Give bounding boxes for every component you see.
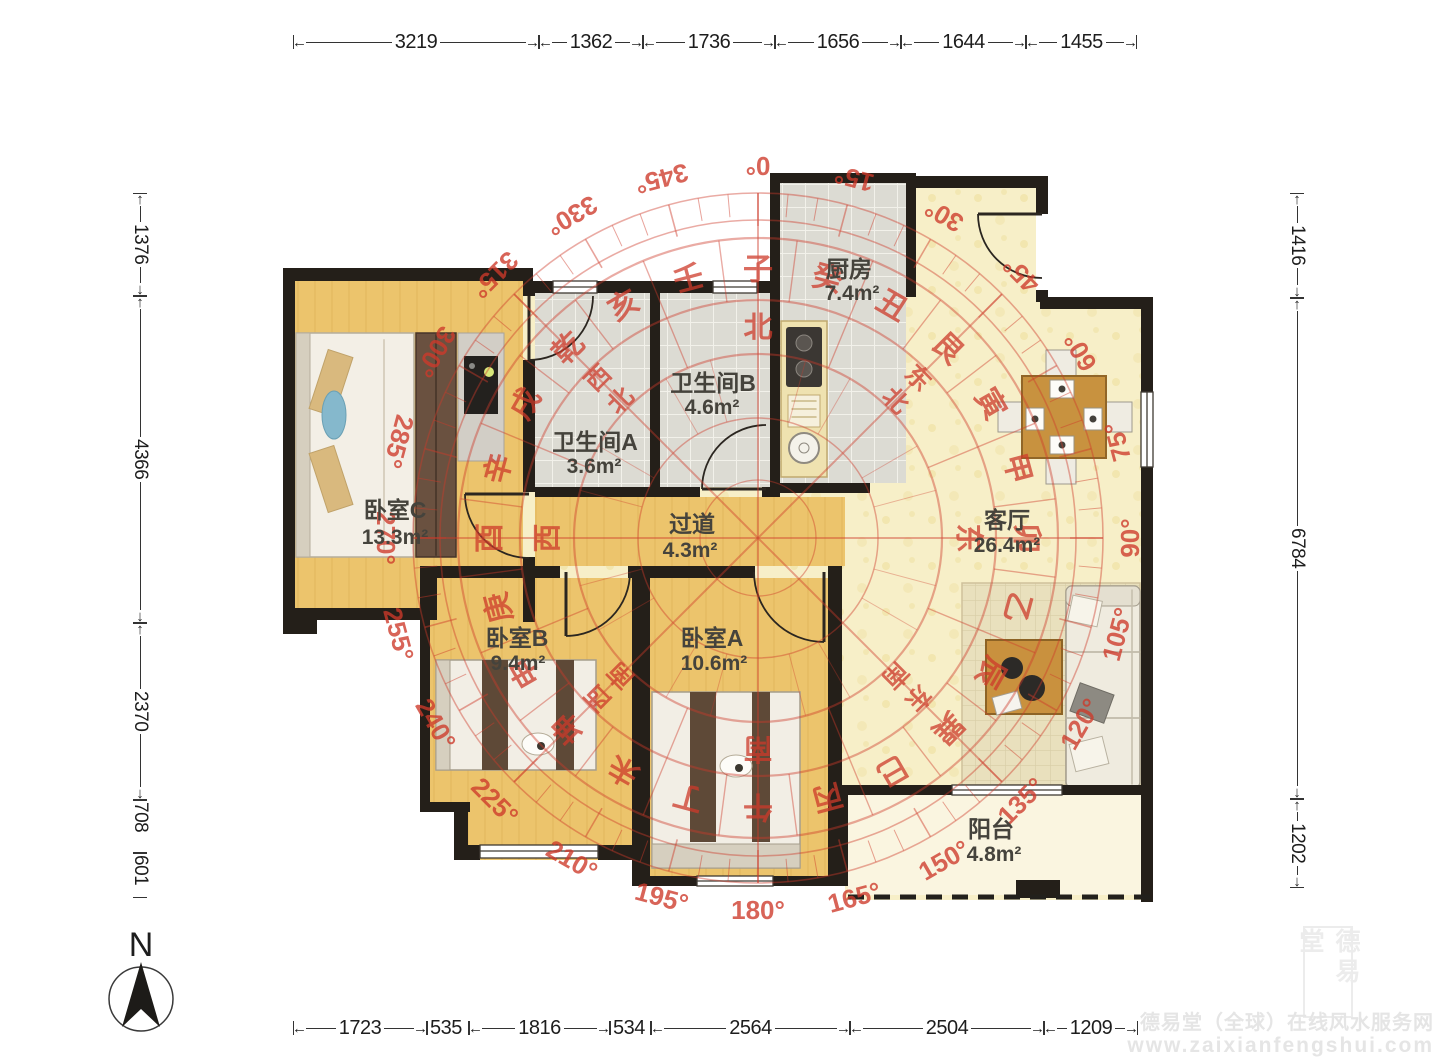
arrow-left-icon: ← (292, 35, 307, 50)
room-label: 卧室A (681, 625, 744, 651)
left-dimensions: ↑1376↓ ↑4366↓ ↑2370↓ 708 601 (118, 193, 162, 898)
north-arrow-icon (122, 962, 160, 1027)
dimension: ↑1416↓ (1275, 193, 1319, 298)
room-label: 阳台 (968, 816, 1014, 842)
arrow-down-icon: ↓ (136, 786, 144, 801)
room-area: 4.3m² (663, 539, 718, 562)
dimension: ↑2370↓ (118, 623, 162, 800)
bottom-dimensions: ←1723→ 535 ←1816→ 534 ←2564→ ←2504→ ←120… (293, 1016, 1138, 1040)
dimension: 535 (427, 1016, 469, 1040)
arrow-right-icon: → (413, 1021, 428, 1036)
floor-plan-page: 0°15°30°45°60°75°90°105°120°135°150°165°… (0, 0, 1440, 1064)
room-area: 4.6m² (685, 396, 740, 419)
arrow-left-icon: ← (849, 1021, 864, 1036)
arrow-up-icon: ↑ (136, 295, 144, 310)
dimension: ←1362→ (539, 30, 643, 54)
dimension: ←1209→ (1044, 1016, 1138, 1040)
arrow-right-icon: → (596, 1021, 611, 1036)
arrow-left-icon: ← (468, 1021, 483, 1036)
room-label: 卧室C (364, 497, 427, 523)
svg-text:南: 南 (743, 732, 772, 765)
svg-text:90°: 90° (1115, 518, 1145, 557)
dimension: ←1816→ (469, 1016, 610, 1040)
dimension: ←1455→ (1026, 30, 1137, 54)
dimension: ←1736→ (643, 30, 775, 54)
arrow-left-icon: ← (650, 1021, 665, 1036)
arrow-left-icon: ← (292, 1021, 307, 1036)
north-indicator: N (109, 926, 173, 1031)
arrow-up-icon: ↑ (136, 622, 144, 637)
arrow-left-icon: ← (900, 35, 915, 50)
dimension: ←1644→ (901, 30, 1026, 54)
watermark-line2: www.zaixianfengshui.com (1127, 1034, 1434, 1058)
svg-text:西: 西 (532, 523, 564, 552)
room-area: 4.8m² (967, 843, 1022, 866)
arrow-left-icon: ← (1043, 1021, 1058, 1036)
room-area: 13.3m² (362, 526, 429, 549)
dimension: 708 (118, 800, 162, 853)
room-label: 卧室B (486, 625, 549, 651)
arrow-left-icon: ← (538, 35, 553, 50)
room-label: 过道 (669, 511, 715, 537)
dimension: 534 (610, 1016, 651, 1040)
svg-text:180°: 180° (731, 895, 785, 925)
room-label: 卫生间B (670, 370, 756, 396)
watermark-seal: 德易堂 (1303, 926, 1353, 1018)
arrow-left-icon: ← (642, 35, 657, 50)
arrow-up-icon: ↑ (1293, 297, 1301, 312)
room-area: 9.4m² (491, 652, 546, 675)
dimension: 601 (118, 853, 162, 898)
tv-stand-c (458, 333, 504, 461)
dimension: ←1656→ (775, 30, 901, 54)
north-label: N (129, 926, 154, 964)
svg-text:午: 午 (743, 790, 773, 823)
arrow-down-icon: ↓ (1293, 874, 1301, 889)
right-dimensions: ↑1416↓ ↑6784↓ ↑1202↓ (1275, 193, 1319, 888)
room-label: 客厅 (984, 507, 1030, 533)
svg-text:345°: 345° (632, 157, 692, 200)
watermark-line1: 德易堂（全球）在线风水服务网 (1127, 1012, 1434, 1034)
dimension: ←2504→ (850, 1016, 1044, 1040)
room-area: 7.4m² (825, 282, 880, 305)
svg-text:北: 北 (743, 311, 772, 344)
room-area: 26.4m² (974, 534, 1041, 557)
arrow-up-icon: ↑ (1293, 192, 1301, 207)
room-label: 卫生间A (552, 429, 638, 455)
dimension: ←3219→ (293, 30, 539, 54)
top-dimensions: ←3219→ ←1362→ ←1736→ ←1656→ ←1644→ ←1455… (293, 30, 1137, 54)
watermark: 德易堂（全球）在线风水服务网 www.zaixianfengshui.com (1127, 1012, 1434, 1058)
arrow-right-icon: → (1123, 35, 1138, 50)
dimension: ↑6784↓ (1275, 298, 1319, 799)
arrow-up-icon: ↑ (1293, 798, 1301, 813)
arrow-left-icon: ← (1025, 35, 1040, 50)
svg-text:子: 子 (743, 254, 773, 287)
room-label: 厨房 (826, 256, 872, 282)
svg-text:酉: 酉 (474, 523, 507, 553)
room-area: 3.6m² (567, 455, 622, 478)
svg-text:0°: 0° (746, 151, 771, 181)
arrow-up-icon: ↑ (136, 192, 144, 207)
dimension: ↑1376↓ (118, 193, 162, 296)
kitchen-counter (781, 321, 827, 477)
room-area: 10.6m² (681, 652, 748, 675)
floor-plan-canvas: 0°15°30°45°60°75°90°105°120°135°150°165°… (0, 0, 1440, 1064)
arrow-left-icon: ← (774, 35, 789, 50)
dimension: ←1723→ (293, 1016, 427, 1040)
dimension: ↑4366↓ (118, 296, 162, 623)
dimension: ↑1202↓ (1275, 799, 1319, 888)
dimension: ←2564→ (651, 1016, 850, 1040)
